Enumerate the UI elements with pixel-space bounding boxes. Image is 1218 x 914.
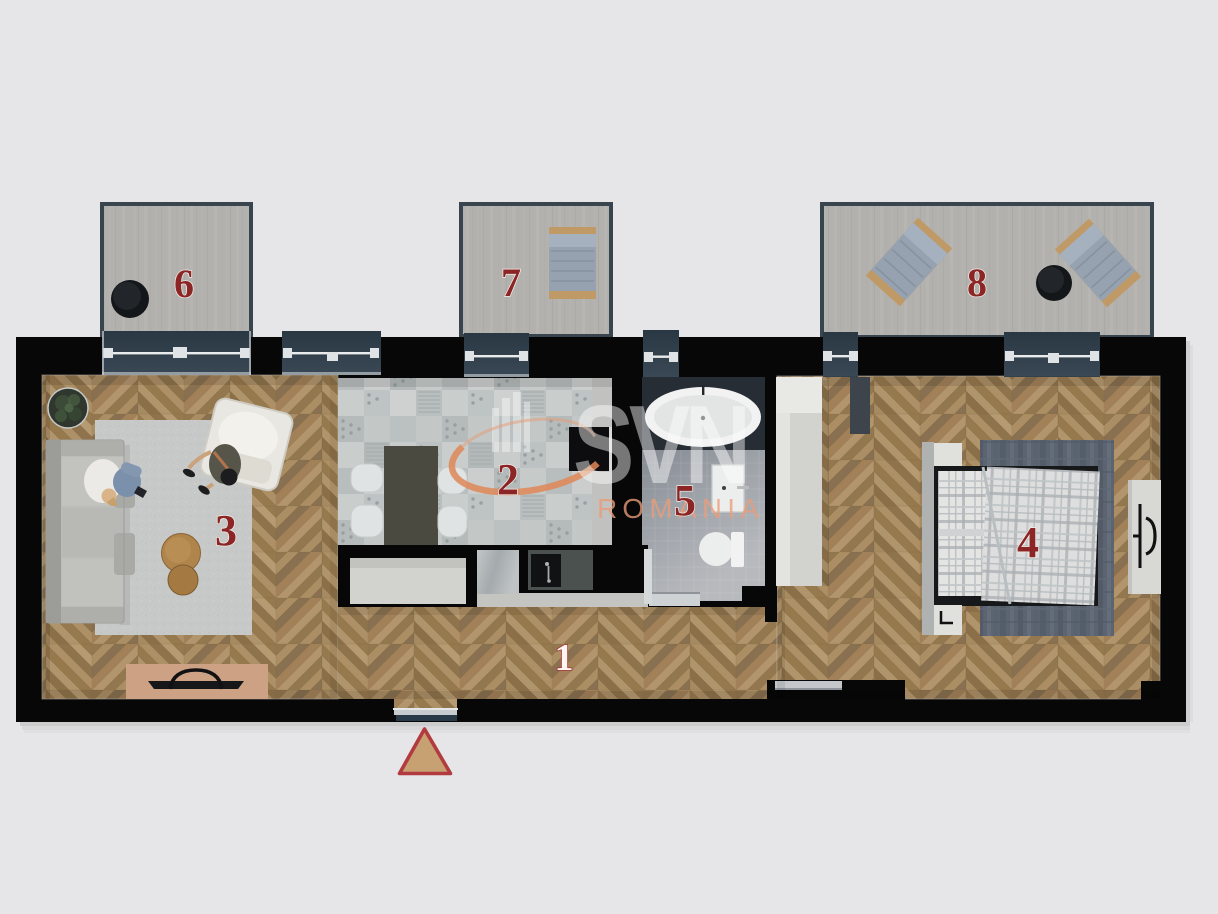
svg-text:1: 1: [555, 637, 574, 679]
svg-text:4: 4: [1017, 518, 1039, 567]
svg-text:5: 5: [674, 476, 696, 525]
svg-text:8: 8: [967, 260, 987, 305]
svg-text:6: 6: [174, 261, 194, 306]
svg-text:7: 7: [501, 260, 521, 305]
svg-text:3: 3: [215, 506, 237, 555]
svg-text:SVN: SVN: [573, 383, 746, 507]
svg-text:2: 2: [497, 455, 519, 504]
